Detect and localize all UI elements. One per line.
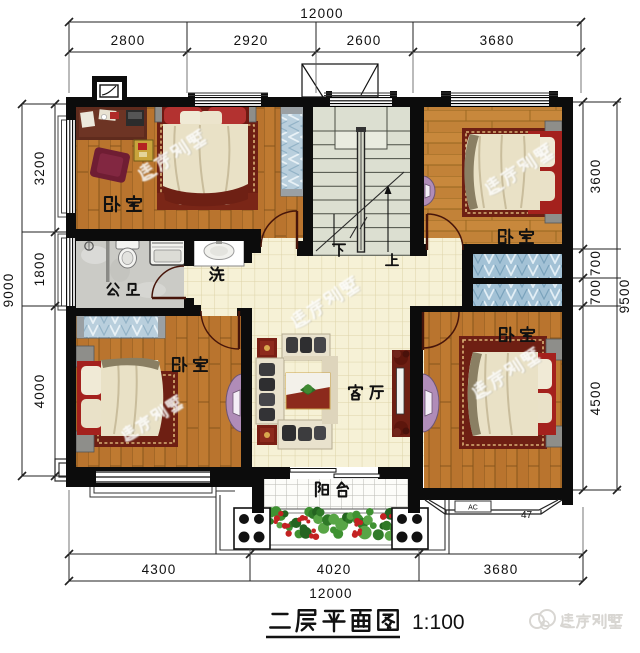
- svg-text:700: 700: [588, 250, 603, 276]
- svg-text:2600: 2600: [347, 33, 382, 48]
- svg-text:4300: 4300: [142, 562, 177, 577]
- svg-text:4500: 4500: [588, 381, 603, 416]
- svg-text:3600: 3600: [588, 159, 603, 194]
- svg-text:12000: 12000: [300, 6, 344, 21]
- svg-text:4000: 4000: [32, 374, 47, 409]
- svg-text:2800: 2800: [111, 33, 146, 48]
- svg-text:AC: AC: [468, 505, 478, 512]
- svg-text:1800: 1800: [32, 252, 47, 287]
- svg-text:47: 47: [521, 510, 533, 521]
- svg-text:3680: 3680: [480, 33, 515, 48]
- svg-text:1:100: 1:100: [412, 611, 465, 634]
- svg-text:700: 700: [588, 279, 603, 305]
- svg-text:12000: 12000: [309, 586, 353, 601]
- svg-text:3680: 3680: [484, 562, 519, 577]
- svg-text:2920: 2920: [234, 33, 269, 48]
- svg-text:9500: 9500: [617, 279, 632, 314]
- svg-text:3200: 3200: [32, 151, 47, 186]
- svg-text:4020: 4020: [317, 562, 352, 577]
- svg-text:9000: 9000: [1, 273, 16, 308]
